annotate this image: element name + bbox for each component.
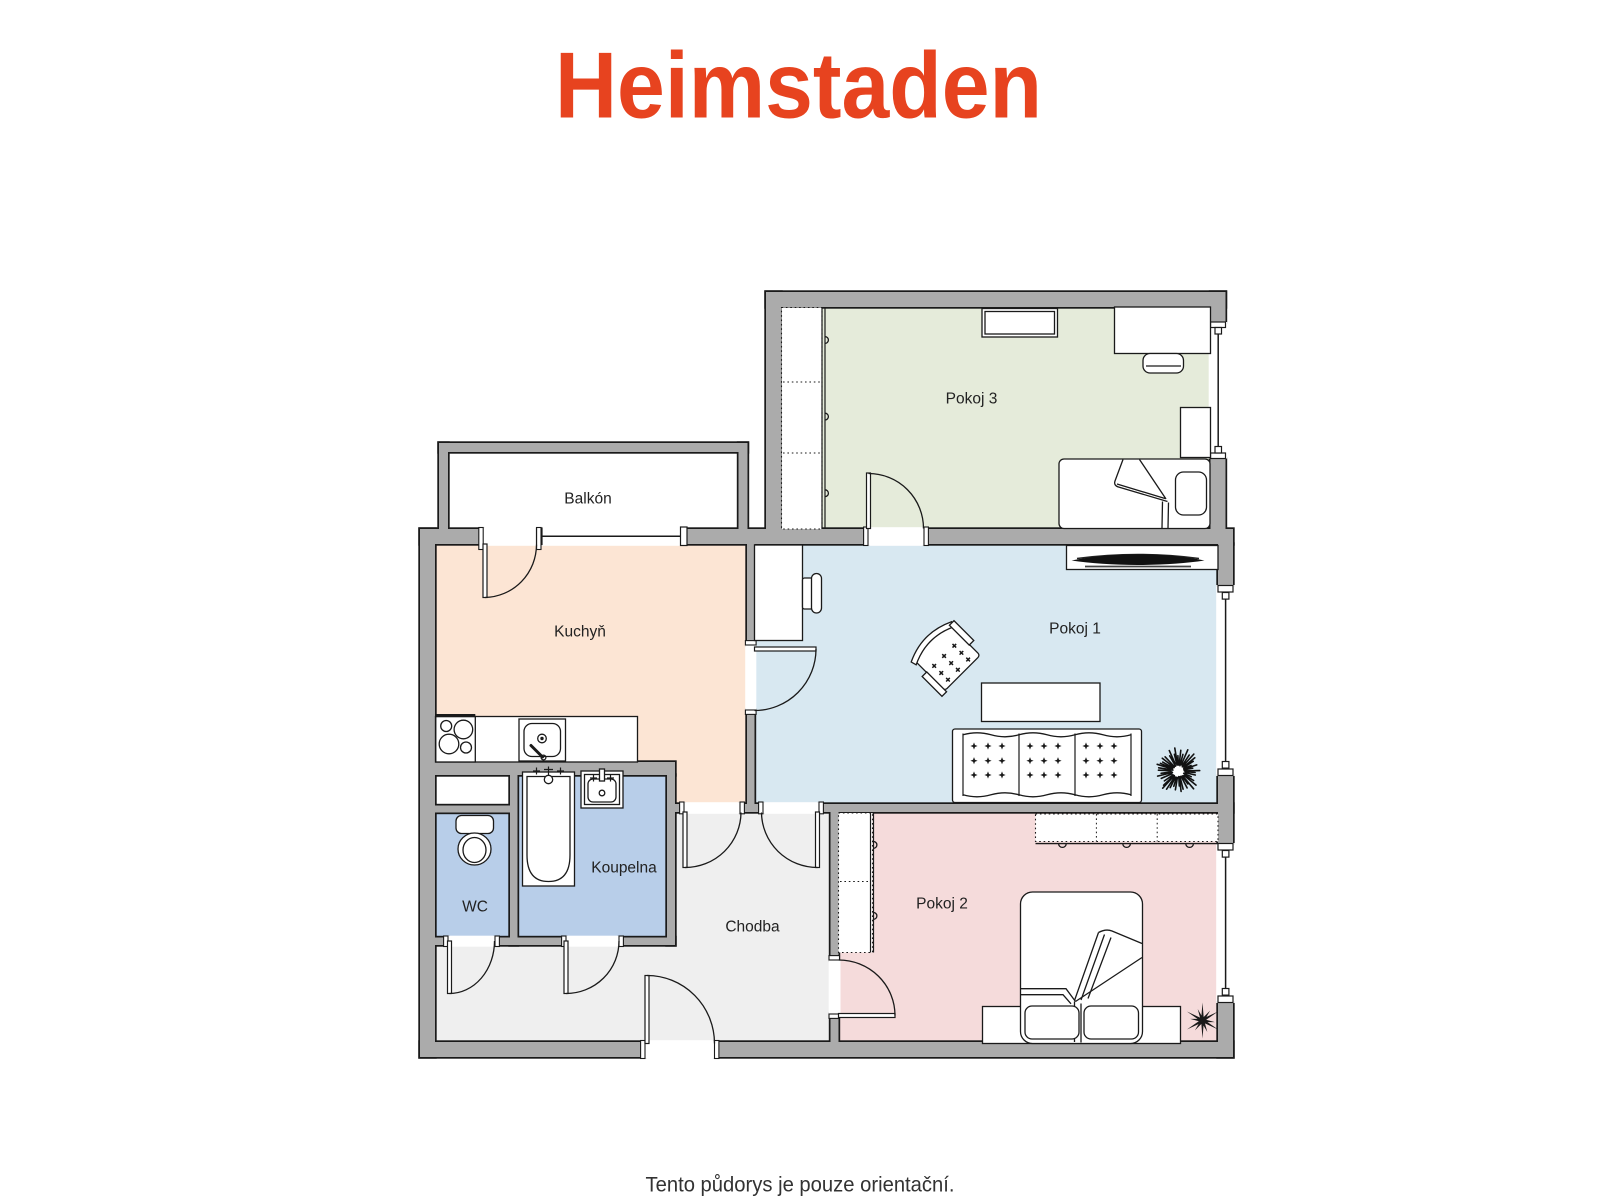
svg-text:Pokoj 1: Pokoj 1 — [1049, 621, 1101, 638]
svg-text:Tento půdorys je pouze orienta: Tento půdorys je pouze orientační. — [646, 1174, 955, 1197]
svg-text:Kuchyň: Kuchyň — [554, 624, 606, 641]
svg-text:Pokoj 2: Pokoj 2 — [916, 896, 968, 913]
svg-text:WC: WC — [462, 899, 488, 916]
svg-text:Pokoj 3: Pokoj 3 — [946, 391, 998, 408]
svg-text:Koupelna: Koupelna — [591, 860, 657, 877]
svg-text:Chodba: Chodba — [725, 919, 780, 936]
svg-text:Balkón: Balkón — [564, 491, 611, 508]
svg-text:Heimstaden: Heimstaden — [555, 33, 1042, 138]
